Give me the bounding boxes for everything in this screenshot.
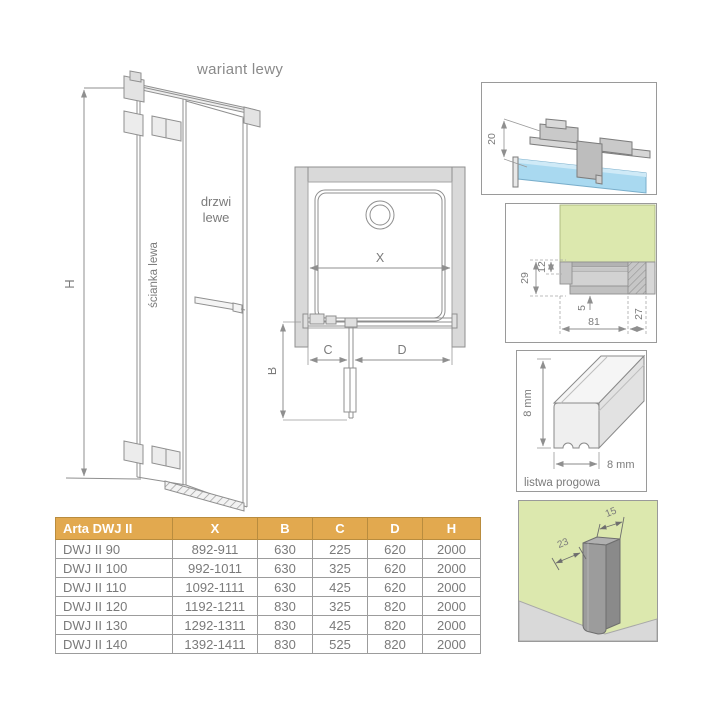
table-cell: 2000 [423,635,481,654]
table-cell: 630 [258,578,313,597]
table-cell: 630 [258,540,313,559]
detail-top-bracket: 20 [481,82,657,195]
glass-clamp [577,141,602,180]
detail-section: 29 12 5 81 27 [505,203,657,343]
threshold-drawing: 8 mm 8 mm listwa progowa [517,351,646,491]
table-cell: 830 [258,635,313,654]
dim-27-label: 27 [633,308,645,320]
hinge-top [124,111,181,141]
table-cell: 620 [368,559,423,578]
diagram-canvas: wariant lewy [0,0,720,720]
hinge-bottom [124,441,180,469]
wall-panel [137,86,186,485]
dim-h-lines [66,88,141,479]
profile-section [560,262,655,294]
dim-5-label: 5 [576,305,588,311]
dim-29-label: 29 [519,272,531,284]
table-cell: 2000 [423,597,481,616]
table-cell: 892-911 [173,540,258,559]
table-cell: 1192-1211 [173,597,258,616]
dim-x-label: X [376,251,385,265]
table-cell: DWJ II 110 [56,578,173,597]
table-cell: 620 [368,578,423,597]
table-cell: 830 [258,616,313,635]
header-d: D [368,518,423,540]
table-cell: 2000 [423,559,481,578]
dim-20-label: 20 [486,133,498,145]
table-cell: 225 [313,540,368,559]
table-cell: 620 [368,540,423,559]
threshold-strip [165,481,244,511]
table-cell: 830 [258,597,313,616]
plan-view-drawing: X C D B [268,148,492,483]
table-cell: DWJ II 140 [56,635,173,654]
table-cell: DWJ II 90 [56,540,173,559]
detail-threshold: 8 mm 8 mm listwa progowa [516,350,647,492]
spec-table: Arta DWJ II X B C D H DWJ II 90 892-911 … [55,517,481,654]
magnetic-profile [583,537,620,634]
table-cell: 820 [368,635,423,654]
table-cell: 1292-1311 [173,616,258,635]
table-cell: 425 [313,578,368,597]
table-cell: DWJ II 120 [56,597,173,616]
open-door-leaf [344,318,357,418]
header-h: H [423,518,481,540]
table-cell: 2000 [423,540,481,559]
header-b: B [258,518,313,540]
door-handle [195,297,245,313]
top-support-bar [124,71,260,127]
table-cell: DWJ II 100 [56,559,173,578]
header-c: C [313,518,368,540]
table-cell: 1092-1111 [173,578,258,597]
table-row: DWJ II 120 1192-1211 830 325 820 2000 [56,597,481,616]
table-row: DWJ II 140 1392-1411 830 525 820 2000 [56,635,481,654]
header-series: Arta DWJ II [56,518,173,540]
table-cell: 525 [313,635,368,654]
seal-prism [554,356,644,448]
table-cell: 325 [313,559,368,578]
wall-edge [513,157,518,187]
table-cell: 992-1011 [173,559,258,578]
table-row: DWJ II 130 1292-1311 830 425 820 2000 [56,616,481,635]
door-label-line1: drzwi [201,194,231,209]
dim-12-label: 12 [536,261,548,273]
dim-b-label: B [268,367,279,375]
table-cell: 820 [368,616,423,635]
table-header-row: Arta DWJ II X B C D H [56,518,481,540]
table-cell: 630 [258,559,313,578]
dim-h-label: H [62,279,77,288]
detail-wall-profile: 23 15 [518,500,658,642]
door-label-line2: lewe [203,210,230,225]
dim-81-label: 81 [588,316,600,328]
dim-8mm-vertical-label: 8 mm [522,389,534,417]
table-row: DWJ II 90 892-911 630 225 620 2000 [56,540,481,559]
threshold-caption: listwa progowa [524,477,601,489]
table-cell: DWJ II 130 [56,616,173,635]
wall-panel-label: ścianka lewa [148,241,160,307]
ground-line [66,478,141,479]
elevation-drawing: H ścianka lewa drzwi lewe [40,60,270,520]
wall-profile-drawing: 23 15 [519,501,657,641]
table-cell: 820 [368,597,423,616]
wall-green [560,205,655,262]
table-row: DWJ II 110 1092-1111 630 425 620 2000 [56,578,481,597]
table-cell: 2000 [423,616,481,635]
section-drawing: 29 12 5 81 27 [506,204,656,342]
table-row: DWJ II 100 992-1011 630 325 620 2000 [56,559,481,578]
table-cell: 325 [313,597,368,616]
dim-c-label: C [323,343,332,357]
table-cell: 425 [313,616,368,635]
plan-dim-lines [283,322,452,420]
table-cell: 1392-1411 [173,635,258,654]
header-x: X [173,518,258,540]
dim-d-label: D [397,343,406,357]
dim-8mm-horizontal-label: 8 mm [607,459,635,471]
table-cell: 2000 [423,578,481,597]
top-bracket-drawing: 20 [482,83,656,194]
